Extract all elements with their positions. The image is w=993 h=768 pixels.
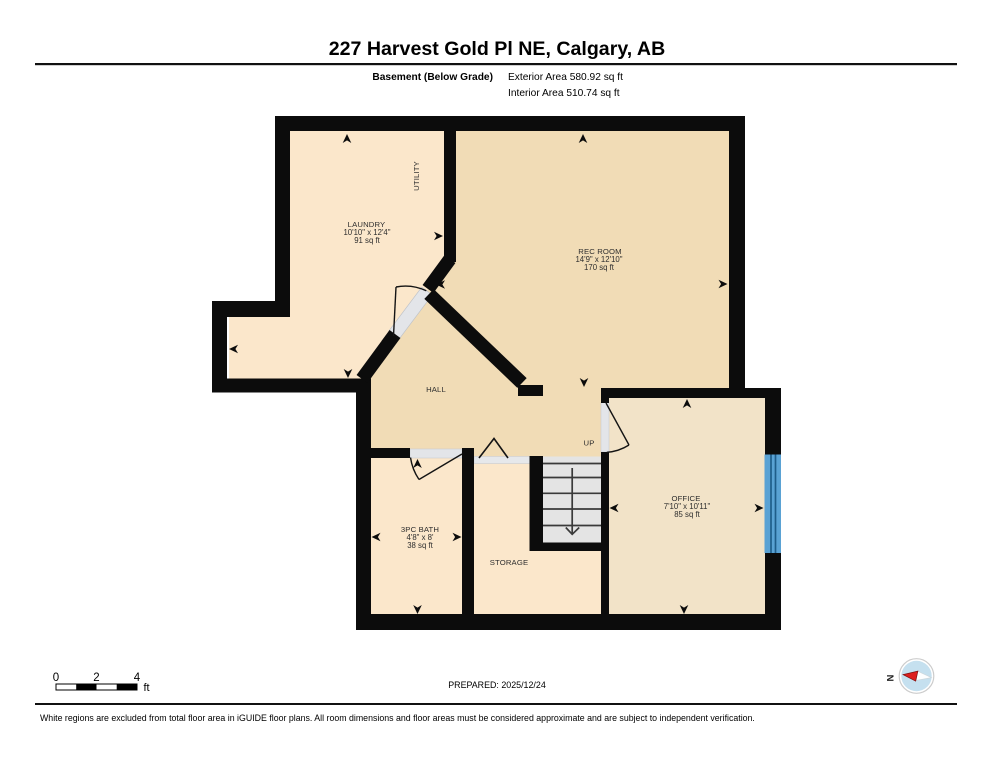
svg-text:0: 0 xyxy=(53,672,59,684)
svg-text:170 sq ft: 170 sq ft xyxy=(584,263,615,272)
svg-text:UP: UP xyxy=(584,439,595,448)
svg-text:PREPARED: 2025/12/24: PREPARED: 2025/12/24 xyxy=(448,680,546,690)
svg-text:White regions are excluded fro: White regions are excluded from total fl… xyxy=(40,713,755,723)
svg-text:38 sq ft: 38 sq ft xyxy=(407,541,433,550)
svg-text:227 Harvest Gold Pl NE, Calgar: 227 Harvest Gold Pl NE, Calgary, AB xyxy=(329,38,665,60)
svg-text:Exterior Area 580.92 sq ft: Exterior Area 580.92 sq ft xyxy=(508,72,623,83)
svg-text:85 sq ft: 85 sq ft xyxy=(674,510,700,519)
svg-text:HALL: HALL xyxy=(426,385,446,394)
svg-text:Interior Area 510.74 sq ft: Interior Area 510.74 sq ft xyxy=(508,88,620,99)
svg-text:4: 4 xyxy=(134,672,141,684)
svg-text:Basement (Below Grade): Basement (Below Grade) xyxy=(372,72,493,83)
svg-text:2: 2 xyxy=(93,672,99,684)
svg-text:ft: ft xyxy=(144,682,150,694)
svg-text:UTILITY: UTILITY xyxy=(412,161,421,191)
svg-text:91 sq ft: 91 sq ft xyxy=(354,236,380,245)
svg-text:STORAGE: STORAGE xyxy=(490,558,529,567)
svg-text:N: N xyxy=(886,674,897,681)
